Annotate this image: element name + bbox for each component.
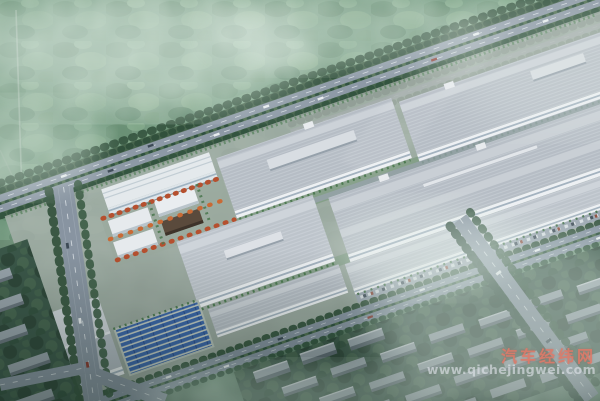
scene-canvas [0, 0, 600, 401]
aerial-factory-rendering: 汽车经纬网 www.qichejingwei.com [0, 0, 600, 401]
